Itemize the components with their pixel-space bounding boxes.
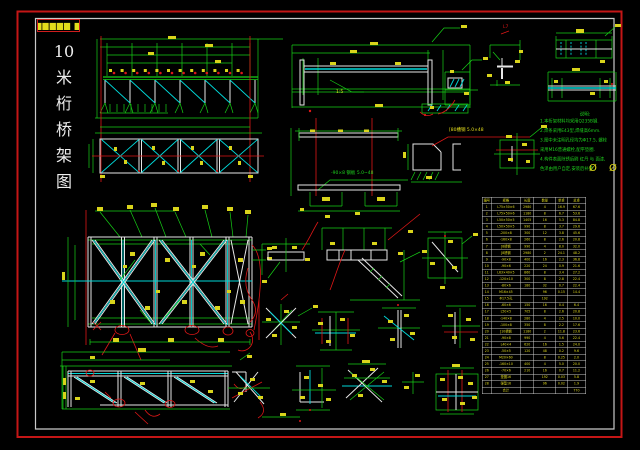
title-char: 图 [51, 174, 77, 190]
material-table-cell [520, 387, 534, 394]
note-symbol: Ø [609, 163, 617, 174]
splice-plate-details [548, 24, 621, 101]
material-table-cell: 770 [567, 387, 586, 394]
plate-leader-label: -90×8 钢板 5.0~48 [331, 171, 416, 180]
end-panel-detail [60, 348, 252, 424]
joint-details [228, 212, 480, 422]
channel-leader-label: [80槽钢 5.0×48 [449, 128, 518, 137]
material-table-cell [556, 387, 568, 394]
material-table: 编号规格长度数量单重总重1L75×50×62980416.967.62L75×5… [482, 197, 586, 401]
truss-plan-view [89, 127, 264, 178]
title-char: 架 [51, 148, 77, 164]
title-char: 10 [51, 44, 77, 60]
note-line: 3.图中未注明孔径均为Φ17.5, 螺栓 [540, 136, 640, 146]
scale-label: 1:5 [336, 90, 350, 99]
detail-reference-label: L7 [503, 25, 514, 34]
corner-joint-detail [487, 31, 523, 86]
stringer-beam-elevation [292, 25, 488, 116]
note-line: 1.本桁架材料均采用Q235B钢. [540, 117, 640, 127]
watermark-stamp: ▆▆▆▆▆ ▆ [37, 19, 80, 32]
truss-side-elevation [95, 36, 283, 182]
title-char: 桥 [51, 122, 77, 138]
note-line: 采用M16普通螺栓,配平垫圈. [540, 146, 640, 156]
material-table-cell [482, 387, 491, 394]
note-line: 2.焊条采用E43型,焊缝高6mm. [540, 127, 640, 137]
title-char: 桁 [51, 96, 77, 112]
note-symbol: Ø [589, 163, 597, 174]
title-char: 米 [51, 70, 77, 86]
material-table-row: 合计770 [482, 387, 586, 394]
watermark-text: ▆▆▆▆▆ ▆ [37, 21, 80, 30]
material-table-grid: 编号规格长度数量单重总重1L75×50×62980416.967.62L75×5… [482, 197, 586, 394]
cad-drawing-canvas[interactable]: ▆▆▆▆▆ ▆ 10米桁桥架图 说明: 1.本桁架材料均采用Q235B钢.2.焊… [0, 0, 640, 450]
truss-panel-elevation [62, 203, 272, 360]
drawing-title: 10米桁桥架图 [51, 44, 77, 200]
material-table-inner: 编号规格长度数量单重总重1L75×50×62980416.967.62L75×5… [482, 197, 534, 394]
material-table-cell [534, 387, 556, 394]
material-table-cell: 合计 [491, 387, 520, 394]
